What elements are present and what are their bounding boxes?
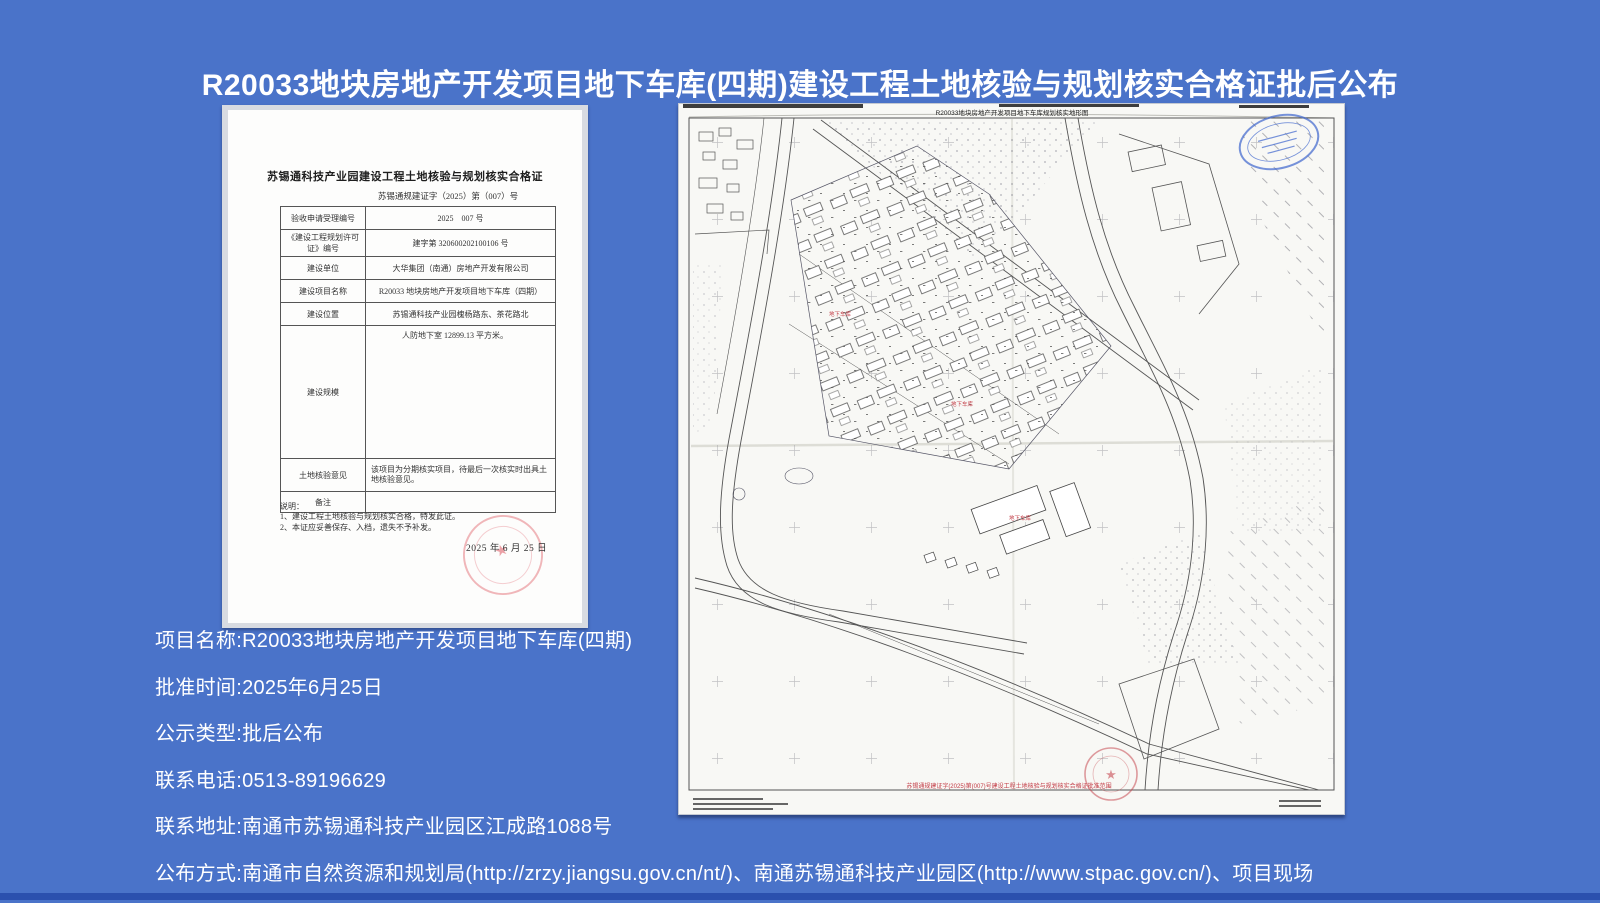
row-value: 苏锡通科技产业园槐杨路东、茶花路北 [366, 303, 556, 326]
detail-value: R20033地块房地产开发项目地下车库(四期) [242, 630, 632, 652]
bottom-edge-strip [0, 893, 1600, 900]
certificate-doc-number: 苏锡通规建证字（2025）第（007）号 [348, 190, 548, 202]
announcement-page: R20033地块房地产开发项目地下车库(四期)建设工程土地核验与规划核实合格证批… [0, 0, 1600, 900]
table-row: 土地核验意见 该项目为分期核实项目，待最后一次核实时出具土地核验意见。 [281, 459, 556, 492]
garage-annotation: 地下车库 [1009, 514, 1032, 522]
garage-annotation: 地下车库 [829, 310, 852, 318]
detail-address: 联系地址:南通市苏锡通科技产业园区江成路1088号 [155, 810, 1555, 839]
map-title: R20033地块房地产开发项目地下车库规划核实地形图 [936, 108, 1089, 117]
detail-value: 2025年6月25日 [242, 677, 383, 699]
detail-approval-date: 批准时间:2025年6月25日 [155, 671, 1555, 700]
row-value: R20033 地块房地产开发项目地下车库（四期） [366, 280, 556, 303]
detail-value: 南通市苏锡通科技产业园区江成路1088号 [242, 816, 613, 838]
detail-value: 0513-89196629 [242, 770, 386, 792]
row-label: 《建设工程规划许可证》编号 [281, 230, 366, 257]
detail-value: 南通市自然资源和规划局(http://zrzy.jiangsu.gov.cn/n… [242, 863, 1314, 885]
row-label: 验收申请受理编号 [281, 207, 366, 230]
detail-value: 批后公布 [242, 723, 323, 745]
certificate-title: 苏锡通科技产业园建设工程土地核验与规划核实合格证 [228, 168, 582, 184]
row-value: 人防地下室 12899.13 平方米。 [366, 326, 556, 459]
detail-label: 公布方式: [155, 863, 242, 885]
detail-label: 联系电话: [155, 770, 242, 792]
detail-label: 批准时间: [155, 677, 242, 699]
detail-notice-type: 公示类型:批后公布 [155, 717, 1555, 746]
row-value: 建字第 320600202100106 号 [366, 230, 556, 257]
garage-annotation: 地下车库 [951, 400, 974, 408]
row-label: 土地核验意见 [281, 459, 366, 492]
row-label: 建设规模 [281, 326, 366, 459]
table-row: 建设项目名称 R20033 地块房地产开发项目地下车库（四期） [281, 280, 556, 303]
table-row: 《建设工程规划许可证》编号 建字第 320600202100106 号 [281, 230, 556, 257]
detail-publish-channels: 公布方式:南通市自然资源和规划局(http://zrzy.jiangsu.gov… [155, 857, 1555, 886]
table-row: 验收申请受理编号 2025 007 号 [281, 207, 556, 230]
notes-title: 说明： [280, 502, 560, 512]
detail-label: 公示类型: [155, 723, 242, 745]
certificate-sheet: 苏锡通科技产业园建设工程土地核验与规划核实合格证 苏锡通规建证字（2025）第（… [228, 110, 582, 623]
detail-project-name: 项目名称:R20033地块房地产开发项目地下车库(四期) [155, 624, 1555, 653]
detail-phone: 联系电话:0513-89196629 [155, 764, 1555, 793]
row-value: 该项目为分期核实项目，待最后一次核实时出具土地核验意见。 [366, 459, 556, 492]
row-label: 建设项目名称 [281, 280, 366, 303]
row-value: 大华集团（南通）房地产开发有限公司 [366, 257, 556, 280]
page-title: R20033地块房地产开发项目地下车库(四期)建设工程土地核验与规划核实合格证批… [0, 60, 1600, 104]
certificate-scan: 苏锡通科技产业园建设工程土地核验与规划核实合格证 苏锡通规建证字（2025）第（… [222, 105, 588, 628]
detail-label: 项目名称: [155, 630, 242, 652]
table-row: 建设位置 苏锡通科技产业园槐杨路东、茶花路北 [281, 303, 556, 326]
announcement-details: 项目名称:R20033地块房地产开发项目地下车库(四期) 批准时间:2025年6… [155, 624, 1555, 903]
table-row: 建设单位 大华集团（南通）房地产开发有限公司 [281, 257, 556, 280]
certificate-date: 2025 年 6 月 25 日 [466, 540, 586, 554]
detail-label: 联系地址: [155, 816, 242, 838]
row-value: 2025 007 号 [366, 207, 556, 230]
row-label: 建设单位 [281, 257, 366, 280]
table-row: 建设规模 人防地下室 12899.13 平方米。 [281, 326, 556, 459]
certificate-table: 验收申请受理编号 2025 007 号 《建设工程规划许可证》编号 建字第 32… [280, 206, 556, 513]
row-label: 建设位置 [281, 303, 366, 326]
